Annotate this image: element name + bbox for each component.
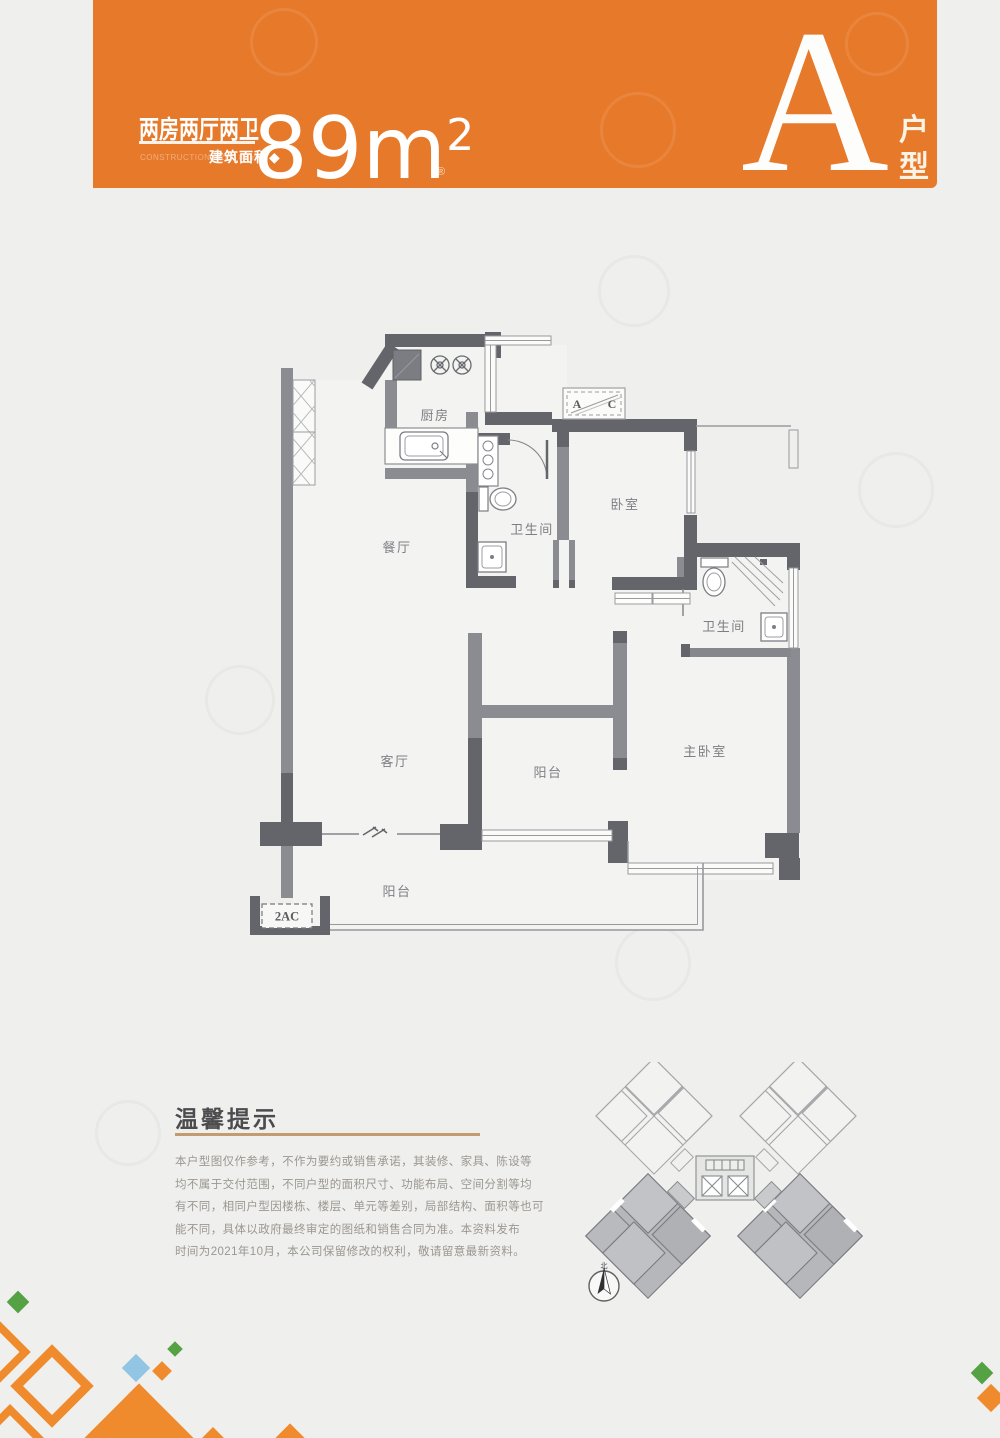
diamond-orange-outline [17, 1351, 88, 1422]
diamond-orange [152, 1361, 172, 1381]
room-label-dining: 餐厅 [382, 540, 411, 555]
elevator-c-label: C [608, 397, 617, 411]
room-label-bathroom2: 卫生间 [702, 619, 746, 634]
room-label-balcony-middle: 阳台 [533, 765, 562, 780]
room-label-master-bedroom: 主卧室 [683, 744, 727, 759]
sink-icon [400, 432, 448, 460]
site-core [696, 1156, 754, 1200]
area-superscript: 2 [446, 110, 474, 161]
diamond-orange [226, 1423, 340, 1438]
notice-line: 有不同，相同户型因楼栋、楼层、单元等差别，局部结构、面积等也可 [175, 1196, 505, 1219]
diamond-green [167, 1341, 183, 1357]
shaft-hatch [293, 380, 315, 485]
ac-unit-label: 2AC [275, 910, 299, 924]
notice-title-underline [175, 1133, 480, 1136]
elevator-a-label: A [573, 397, 582, 411]
diamond-blue [122, 1354, 150, 1382]
unit-letter: A [741, 18, 889, 186]
decor-diamonds-left [0, 1282, 340, 1438]
diamond-orange-outline [0, 1321, 25, 1383]
watermark-icon [858, 452, 934, 528]
site-wing-se [736, 1171, 863, 1298]
washbasin-icon [761, 613, 787, 641]
watermark-icon [95, 1100, 161, 1166]
unit-type-char1: 户 [895, 112, 933, 149]
area-number: 89m [253, 99, 446, 188]
notice-line: 本户型图仅作参考，不作为要约或销售承诺，其装修、家具、陈设等 [175, 1151, 505, 1174]
elevator-box: A C [563, 388, 625, 419]
diamond-orange [977, 1384, 1000, 1412]
decor-diamonds-right [950, 1350, 1000, 1438]
notice-line: 均不属于交付范围，不同户型的面积尺寸、功能布局、空间分割等均 [175, 1174, 505, 1197]
washbasin-icon [478, 542, 506, 572]
room-label-living: 客厅 [380, 754, 409, 769]
room-label-bathroom1: 卫生间 [510, 522, 554, 537]
ac-unit-box: 2AC [262, 904, 312, 928]
room-label-kitchen: 厨房 [420, 408, 449, 423]
watermark-icon [598, 255, 670, 327]
notice-body: 本户型图仅作参考，不作为要约或销售承诺，其装修、家具、陈设等 均不属于交付范围，… [175, 1151, 505, 1264]
notice-line: 时间为2021年10月，本公司保留修改的权利，敬请留意最新资料。 [175, 1241, 505, 1264]
room-label-bedroom: 卧室 [610, 497, 639, 512]
unit-footprint [293, 345, 800, 930]
notice-line: 能不同，具体以政府最终审定的图纸和销售合同为准。本资料发布 [175, 1219, 505, 1242]
registered-mark: ® [437, 166, 445, 178]
banner-title-underline [139, 141, 255, 144]
header-banner: 两房两厅两卫 CONSTRUCTION AREA 89㎡ 建筑面积◆ 89m2 … [93, 0, 937, 188]
unit-type-vertical: 户 型 [895, 112, 933, 186]
compass-icon: 北 [589, 1262, 619, 1301]
site-wing-nw [596, 1062, 712, 1174]
unit-type-char2: 型 [895, 149, 933, 186]
wardrobe [615, 593, 690, 604]
site-plan: 北 [578, 1062, 870, 1320]
floor-plan: 2AC A C 厨房 餐厅 卫生间 卧室 卫生间 客厅 阳台 主卧室 阳台 [235, 318, 855, 968]
diamond-green [971, 1362, 994, 1385]
toilet-icon [479, 487, 516, 511]
site-connector [756, 1149, 779, 1172]
diamond-orange [82, 1383, 195, 1438]
diamond-green [7, 1291, 30, 1314]
diamond-orange [196, 1427, 230, 1438]
compass-north-label: 北 [601, 1262, 608, 1270]
laundry-cabinet [478, 436, 498, 486]
room-label-balcony-bottom: 阳台 [382, 884, 411, 899]
notice-title: 温馨提示 [175, 1100, 279, 1134]
